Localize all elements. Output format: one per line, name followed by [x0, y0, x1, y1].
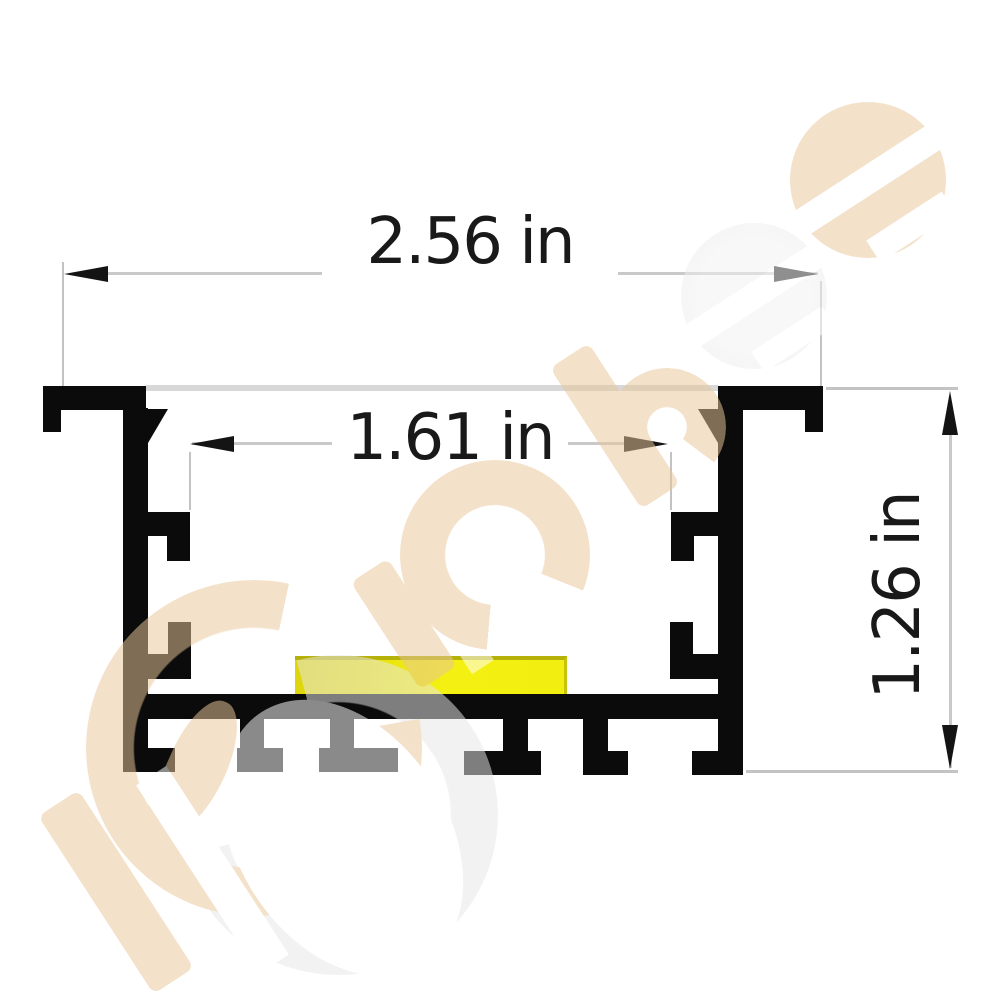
- arrow-left-icon: [190, 436, 234, 452]
- foot-d-stem: [583, 717, 608, 754]
- hook-right-lower-leg: [670, 622, 693, 658]
- wall-right: [718, 408, 743, 775]
- ext-line-inner-left: [189, 452, 191, 510]
- foot-a-bar: [237, 748, 283, 772]
- foot-right-bar: [692, 751, 720, 775]
- watermark: [0, 0, 1000, 1000]
- foot-a-stem: [240, 717, 264, 751]
- arrow-down-icon: [942, 725, 958, 769]
- ext-line-height-bottom: [746, 770, 958, 773]
- foot-d-bar: [583, 751, 628, 775]
- height-label: 1.26 in: [862, 451, 934, 741]
- grip-wedge-left: [148, 409, 168, 443]
- arrow-up-icon: [942, 391, 958, 435]
- hook-right-upper-leg: [671, 534, 694, 561]
- hook-right-upper-bar: [671, 512, 718, 536]
- watermark-white-stripe: [136, 766, 289, 974]
- inner-width-label: 1.61 in: [332, 402, 568, 474]
- hook-left-upper-bar: [148, 512, 190, 536]
- flange-left-lip: [43, 408, 61, 432]
- foot-c-bar: [464, 751, 541, 775]
- arrow-right-icon: [624, 436, 668, 452]
- bottom-plate: [148, 694, 743, 719]
- foot-left-bar: [146, 748, 175, 772]
- ext-line-inner-right: [670, 452, 672, 510]
- hook-left-lower-leg: [168, 622, 191, 658]
- lens-line: [146, 385, 718, 391]
- ext-line-outer-right: [820, 281, 822, 387]
- arrow-right-icon: [774, 266, 818, 282]
- foot-b-bar: [319, 748, 398, 772]
- foot-c-stem: [503, 717, 528, 754]
- hook-left-lower-bar: [148, 654, 191, 679]
- led-strip: [295, 656, 567, 696]
- watermark-letter-c-ring-icon: [400, 460, 590, 650]
- dim-line-height: [949, 402, 952, 768]
- watermark-letter-p-bar-icon: [38, 790, 194, 994]
- ext-line-height-top: [826, 387, 958, 390]
- flange-top-right: [718, 386, 823, 410]
- watermark-e-disc-tan-icon: [790, 102, 946, 258]
- profile-drawing: 2.56 in 1.61 in 1.26 in: [0, 0, 1000, 1000]
- arrow-left-icon: [64, 266, 108, 282]
- wall-left: [123, 408, 148, 772]
- flange-right-lip: [805, 408, 823, 432]
- hook-left-upper-leg: [167, 534, 190, 561]
- foot-b-stem: [330, 717, 354, 751]
- hook-right-lower-bar: [670, 654, 718, 679]
- outer-width-label: 2.56 in: [322, 204, 618, 280]
- watermark-letter-h-icon: [550, 343, 680, 509]
- watermark-e-disc-gray-icon: [681, 223, 827, 369]
- flange-top-left: [43, 386, 146, 410]
- grip-wedge-right: [698, 409, 718, 443]
